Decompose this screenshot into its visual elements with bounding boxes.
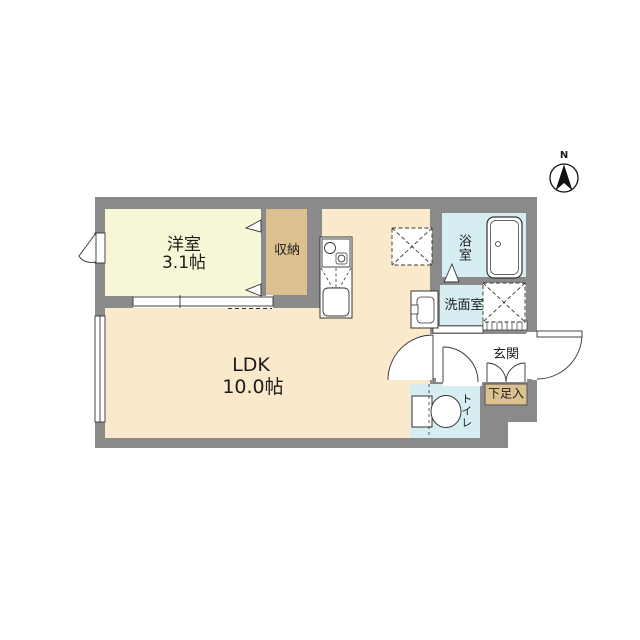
compass-icon (550, 164, 578, 192)
sliding-door-westroom-ldk (133, 297, 273, 306)
shoe-cabinet-label: 下足入 (488, 388, 524, 401)
entrance-door-leaf (537, 331, 582, 337)
bath-label: 浴室 (456, 234, 470, 262)
compass-north-label: N (560, 151, 568, 162)
ldk-size: 10.0帖 (222, 378, 283, 398)
ldk-label: LDK (232, 356, 270, 376)
wall-bottom (95, 438, 508, 448)
wall-top-bath (430, 197, 537, 213)
washroom-label: 洗面室 (444, 299, 483, 313)
toilet-label: トイレ (460, 393, 472, 429)
toilet-bowl-icon (431, 396, 461, 428)
kitchen-sink-icon (323, 288, 349, 316)
entrance-door-swing-fill (537, 334, 582, 379)
wall-closet-divider (261, 206, 266, 296)
entrance-opening (526, 333, 537, 379)
washroom-threshold (433, 326, 483, 333)
wall-westroom-ldk-left (95, 296, 133, 308)
closet-label: 収納 (274, 244, 300, 258)
washer-space-icon (483, 283, 525, 322)
western-room-size: 3.1帖 (162, 255, 206, 273)
bathtub-icon (487, 217, 522, 278)
floorplan-page: 洋室 3.1帖 LDK 10.0帖 収納 浴室 洗面室 玄関 下足入 トイレ N (0, 0, 640, 640)
fridge-space-icon (392, 228, 432, 265)
west-casement-window-icon (79, 233, 96, 262)
west-window-opening (95, 233, 105, 263)
wall-right-upper (526, 197, 537, 332)
vanity-faucet (411, 305, 418, 314)
wall-block-bottomright2 (480, 422, 508, 448)
floorplan-drawing (0, 0, 640, 640)
entrance-label: 玄関 (493, 348, 519, 362)
